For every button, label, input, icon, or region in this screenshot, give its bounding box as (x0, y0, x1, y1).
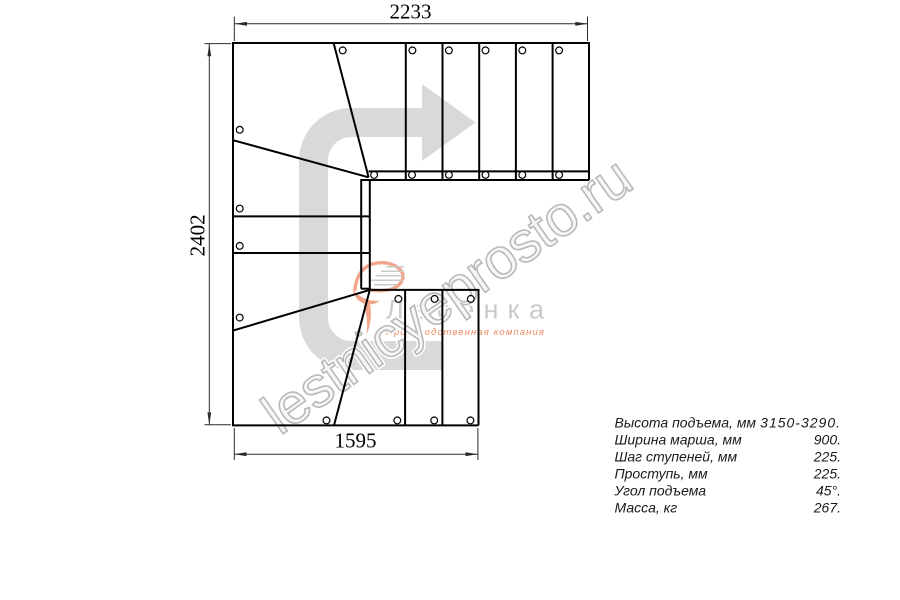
svg-text:3150-3290.: 3150-3290. (760, 414, 841, 430)
svg-text:2402: 2402 (185, 214, 209, 256)
svg-text:225.: 225. (813, 465, 841, 481)
svg-text:1595: 1595 (335, 429, 377, 453)
svg-text:Масса, кг: Масса, кг (615, 499, 678, 515)
svg-text:2233: 2233 (390, 0, 432, 24)
svg-text:Угол подъема: Угол подъема (614, 482, 707, 498)
svg-text:Ширина марша, мм: Ширина марша, мм (615, 431, 743, 447)
svg-text:900.: 900. (814, 431, 841, 447)
svg-text:45°.: 45°. (816, 482, 841, 498)
svg-text:Высота подъема, мм: Высота подъема, мм (615, 414, 757, 430)
svg-text:225.: 225. (813, 448, 841, 464)
svg-text:Шаг ступеней, мм: Шаг ступеней, мм (615, 448, 738, 464)
svg-text:267.: 267. (813, 499, 841, 515)
svg-text:Проступь, мм: Проступь, мм (615, 465, 709, 481)
